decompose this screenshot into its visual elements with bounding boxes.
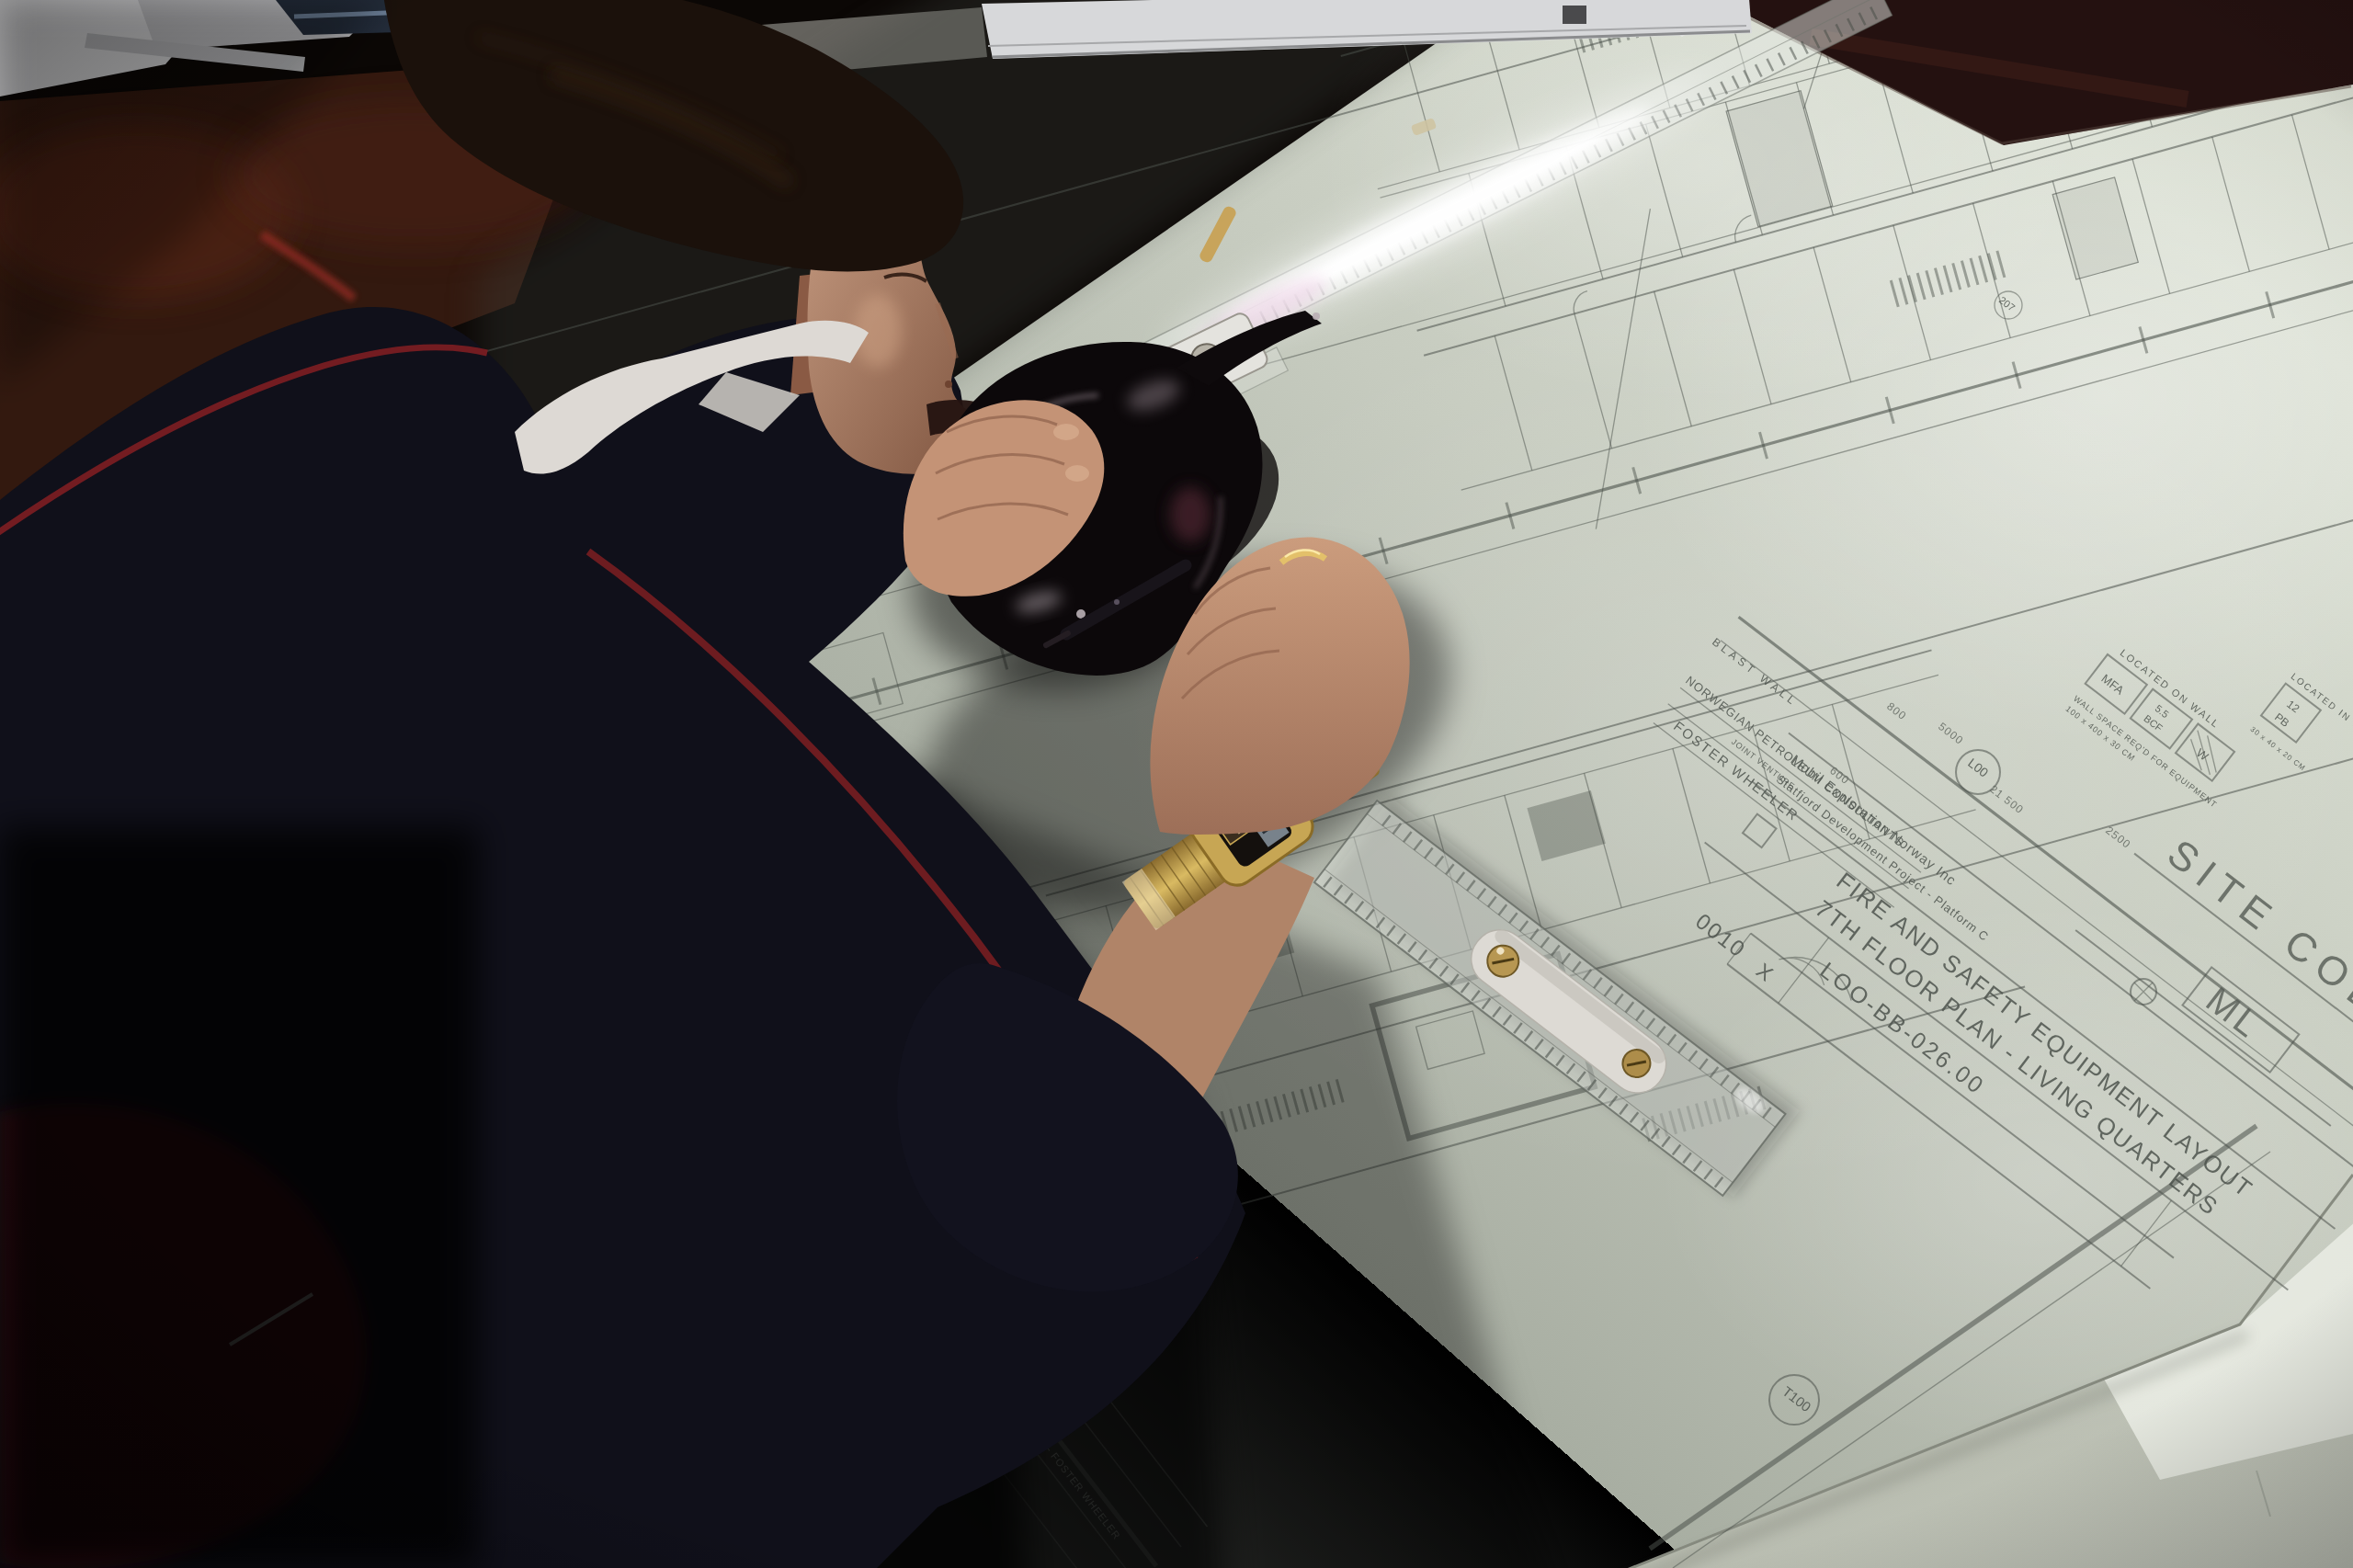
scene-canvas: Mobil Exploration Norway Inc Statfjord D… bbox=[0, 0, 2353, 1568]
photo-drafting-scene: Mobil Exploration Norway Inc Statfjord D… bbox=[0, 0, 2353, 1568]
vignette bbox=[0, 0, 2353, 1568]
